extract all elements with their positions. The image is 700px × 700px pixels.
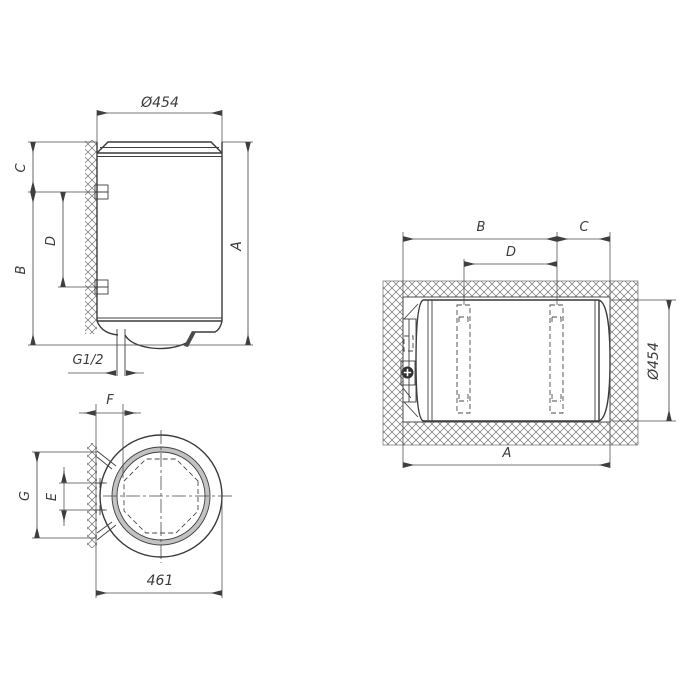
top-dim-e-label: E <box>45 492 60 501</box>
top-dim-f-label: F <box>106 393 114 408</box>
dim-front-c: C <box>14 142 33 192</box>
side-bracket-slots <box>457 305 563 413</box>
top-width-label: 461 <box>147 573 174 589</box>
dim-side-c: C <box>557 220 610 239</box>
front-diameter-label: Ø454 <box>140 95 179 111</box>
dim-front-a: A <box>222 142 253 345</box>
technical-drawing-page: Ø454 A C B D G1/2 <box>0 0 700 700</box>
front-dim-c-label: C <box>14 163 29 173</box>
top-view: F G E 461 <box>18 393 233 598</box>
front-dim-a-label: A <box>229 241 245 252</box>
side-view: B C D A Ø454 <box>383 220 676 468</box>
dim-front-thread: G1/2 <box>68 353 144 373</box>
side-dim-d-label: D <box>506 245 516 260</box>
dim-side-b: B <box>403 220 557 239</box>
side-diameter-label: Ø454 <box>646 342 662 381</box>
side-dim-c-label: C <box>579 220 589 235</box>
top-dim-g-label: G <box>18 491 33 501</box>
side-niche-opening <box>403 297 610 422</box>
side-dim-b-label: B <box>477 220 486 235</box>
dim-front-diameter: Ø454 <box>97 95 222 142</box>
side-dim-a-label: A <box>502 446 512 461</box>
dim-top-e: E <box>45 467 107 526</box>
front-inlet-pipe <box>117 329 125 376</box>
front-tank-body <box>97 142 222 348</box>
water-heater-dimensional-drawing: Ø454 A C B D G1/2 <box>0 0 700 700</box>
front-drain-detail <box>184 331 196 347</box>
dim-front-b: B <box>14 192 33 345</box>
front-dim-d-label: D <box>44 236 59 246</box>
front-dim-b-label: B <box>14 265 29 274</box>
side-tank-body <box>416 300 610 421</box>
front-thread-label: G1/2 <box>73 353 104 368</box>
dim-front-d: D <box>44 192 63 287</box>
top-wall-hatch <box>87 443 97 548</box>
front-view: Ø454 A C B D G1/2 <box>14 95 253 376</box>
dim-side-d: D <box>464 245 557 264</box>
front-wall-hatch <box>85 140 97 334</box>
dim-side-a: A <box>403 446 610 465</box>
